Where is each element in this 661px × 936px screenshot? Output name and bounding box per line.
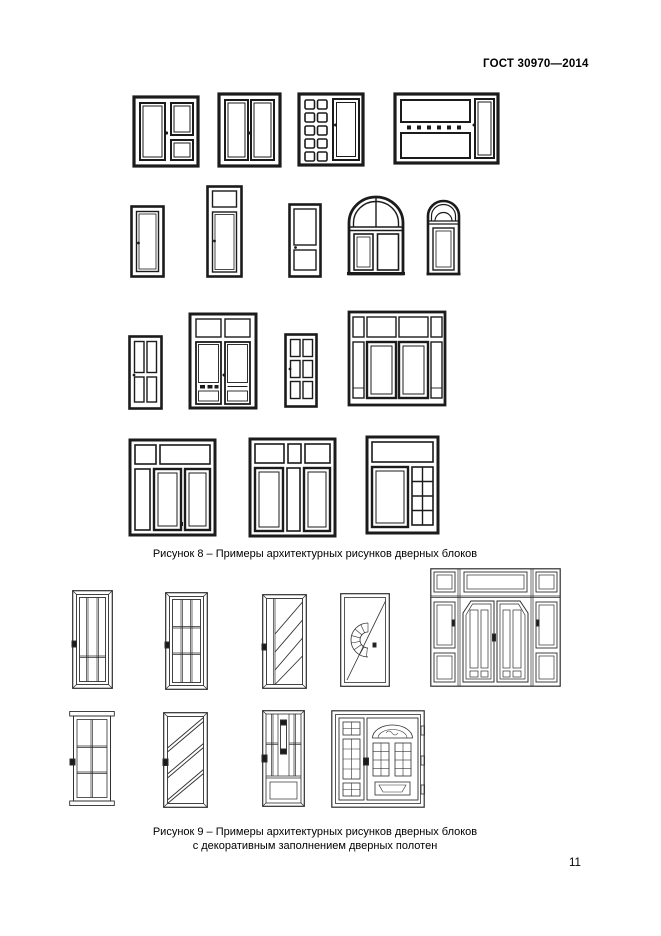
fig9-door-fan-ornament [340, 593, 390, 687]
fig8-door-single-two-panels [288, 203, 322, 278]
fig8-door-arched-double [346, 182, 406, 277]
page-number: 11 [569, 857, 581, 869]
figure9-caption-line2: с декоративным заполнением дверных полот… [0, 840, 630, 854]
fig9-door-vertical-ornament [262, 710, 305, 807]
fig8-door-six-panel [284, 333, 318, 408]
document-header: ГОСТ 30970—2014 [483, 58, 589, 70]
fig9-entrance-door-decorative [331, 710, 425, 808]
document-page: ГОСТ 30970—2014 [0, 0, 661, 936]
fig8-door-four-panel [128, 335, 163, 410]
fig8-block-left-sidelight-transom [128, 438, 217, 537]
fig9-door-diagonal-bars [262, 594, 307, 689]
fig8-block-center-light-transom [248, 437, 337, 538]
figure8-caption: Рисунок 8 – Примеры архитектурных рисунк… [0, 548, 630, 562]
fig9-door-vertical-bars [72, 590, 113, 689]
fig8-door-single-flush [130, 205, 165, 278]
fig8-door-double-fully-glazed [217, 92, 282, 168]
fig8-block-grid-sidelight-transom [365, 435, 440, 535]
fig9-door-six-pane-cornice [69, 710, 115, 808]
fig8-door-single-with-transom [206, 185, 243, 278]
fig9-door-three-diagonal-bands [163, 712, 208, 808]
fig8-block-two-leaves-sidelights-transom [347, 310, 447, 407]
fig8-door-arched-single [425, 185, 462, 277]
figure9-caption-line1: Рисунок 9 – Примеры архитектурных рисунк… [0, 826, 630, 840]
fig8-door-ten-panel-sidelight [297, 92, 365, 167]
figure9-caption: Рисунок 9 – Примеры архитектурных рисунк… [0, 826, 630, 853]
fig9-entrance-block-double-door [430, 568, 561, 687]
fig8-door-wide-dentil-transom [393, 92, 500, 165]
fig8-door-double-glazed-split-right [132, 95, 200, 168]
fig8-door-double-with-transom-panels [188, 312, 258, 410]
fig9-door-nine-pane-grid [165, 592, 208, 690]
